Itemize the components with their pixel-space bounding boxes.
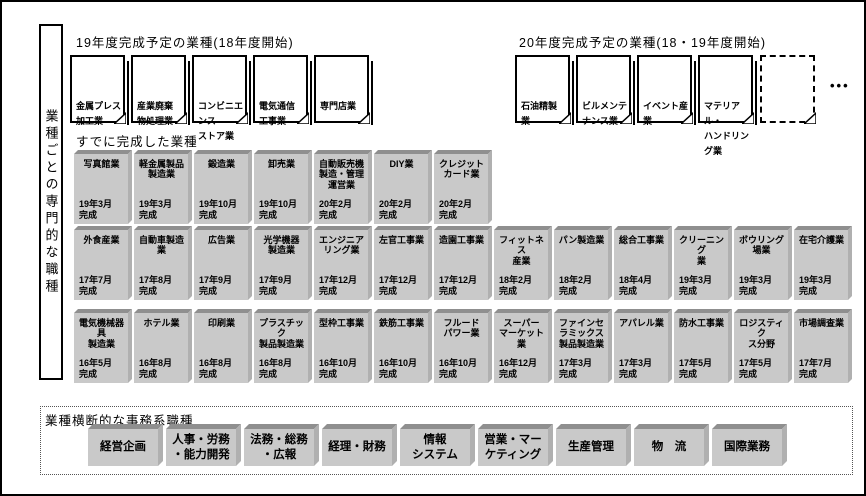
industry-name: 電気機械器具 製造業 xyxy=(77,318,126,349)
industry-name: ホテル業 xyxy=(137,318,186,328)
card-shadow-line xyxy=(249,61,251,125)
industry-name: クリーニング 業 xyxy=(677,235,726,266)
folded-corner-icon xyxy=(742,112,754,124)
office-category-box: 経営企画 xyxy=(88,429,158,466)
completed-industry-box: 光学機器 製造業 17年9月 完成 xyxy=(254,230,308,300)
completion-date: 20年2月 完成 xyxy=(377,199,426,222)
planned-20-cards-row: 石油精製 業 ビルメンテ ナンス業 イベント産業 マテリアル・ ハンドリング業 xyxy=(515,55,753,123)
planned-19-title: 19年度完成予定の業種(18年度開始) xyxy=(76,32,294,51)
industry-name: フルード パワー業 xyxy=(437,318,486,339)
completion-date: 17年12月 完成 xyxy=(377,275,426,298)
office-category-box: 法務・総務 ・広報 xyxy=(244,429,314,466)
industry-card: コンビニエンス ストア業 xyxy=(192,55,247,123)
industry-name: 鍛造業 xyxy=(197,159,246,169)
office-category-box: 営業・マー ケティング xyxy=(478,429,548,466)
industry-name: 写真館業 xyxy=(77,159,126,169)
completed-industry-box: 外食産業 17年7月 完成 xyxy=(74,230,128,300)
completion-date: 17年8月 完成 xyxy=(137,275,186,298)
completed-row-1: 写真館業 19年3月 完成 軽金属製品 製造業 19年3月 完成 鍛造業 19年… xyxy=(74,154,488,224)
industry-card-label: 産業廃棄 物処理業 xyxy=(137,101,173,126)
office-category-box: 物 流 xyxy=(634,429,704,466)
completed-industry-box: クレジット カード業 20年2月 完成 xyxy=(434,154,488,224)
planned-20-title: 20年度完成予定の業種(18・19年度開始) xyxy=(519,32,766,51)
completed-industry-box: プラスチック 製品製造業 16年8月 完成 xyxy=(254,313,308,383)
folded-corner-icon xyxy=(236,112,248,124)
industry-card: 石油精製 業 xyxy=(515,55,570,123)
industry-name: 鉄筋工事業 xyxy=(377,318,426,328)
completion-date: 16年10月 完成 xyxy=(377,358,426,381)
industry-card-label: 石油精製 業 xyxy=(521,101,557,126)
completion-date: 19年10月 完成 xyxy=(257,199,306,222)
industry-name: 軽金属製品 製造業 xyxy=(137,159,186,180)
industry-name: スーパー マーケット業 xyxy=(497,318,546,349)
completion-date: 19年3月 完成 xyxy=(677,275,726,298)
industry-name: ファインセラミックス 製品製造業 xyxy=(557,318,606,349)
completion-date: 17年12月 完成 xyxy=(437,275,486,298)
industry-name: DIY業 xyxy=(377,159,426,169)
card-shadow-line xyxy=(633,61,635,125)
completed-industry-box: クリーニング 業 19年3月 完成 xyxy=(674,230,728,300)
folded-corner-icon xyxy=(175,112,187,124)
card-shadow-line xyxy=(694,61,696,125)
completed-industry-box: 造園工事業 17年12月 完成 xyxy=(434,230,488,300)
industry-name: 防水工事業 xyxy=(677,318,726,328)
completion-date: 16年12月 完成 xyxy=(497,358,546,381)
completion-date: 16年8月 完成 xyxy=(197,358,246,381)
industry-card-label: 電気通信 工事業 xyxy=(259,101,295,126)
industry-card: マテリアル・ ハンドリング業 xyxy=(698,55,753,123)
completion-date: 17年5月 完成 xyxy=(677,358,726,381)
industry-card: 専門店業 xyxy=(314,55,369,123)
completed-industry-box: ロジスティク ス分野 17年5月 完成 xyxy=(734,313,788,383)
industry-name: 光学機器 製造業 xyxy=(257,235,306,256)
card-shadow-line xyxy=(188,61,190,125)
industry-name: 総合工事業 xyxy=(617,235,666,245)
completed-industry-box: フィットネス 産業 18年2月 完成 xyxy=(494,230,548,300)
completion-date: 20年2月 完成 xyxy=(317,199,366,222)
industry-name: エンジニア リング業 xyxy=(317,235,366,256)
completed-industry-box: 在宅介護業 19年3月 完成 xyxy=(794,230,848,300)
completion-date: 18年2月 完成 xyxy=(497,275,546,298)
completed-industry-box: 総合工事業 18年4月 完成 xyxy=(614,230,668,300)
industry-name: 造園工事業 xyxy=(437,235,486,245)
ellipsis-more-indicator: ••• xyxy=(830,78,850,93)
industry-name: フィットネス 産業 xyxy=(497,235,546,266)
industry-name: アパレル業 xyxy=(617,318,666,328)
office-category-box: 国際業務 xyxy=(712,429,782,466)
completion-date: 17年12月 完成 xyxy=(317,275,366,298)
completion-date: 16年8月 完成 xyxy=(257,358,306,381)
industry-name: 市場調査業 xyxy=(797,318,846,328)
completed-industry-box: 市場調査業 17年7月 完成 xyxy=(794,313,848,383)
future-industry-placeholder-card xyxy=(760,55,815,123)
industry-name: ロジスティク ス分野 xyxy=(737,318,786,349)
completion-date: 16年10月 完成 xyxy=(317,358,366,381)
industry-name: パン製造業 xyxy=(557,235,606,245)
industry-card: ビルメンテ ナンス業 xyxy=(576,55,631,123)
completion-date: 19年10月 完成 xyxy=(197,199,246,222)
completion-date: 17年9月 完成 xyxy=(257,275,306,298)
completed-title: すでに完成した業種 xyxy=(76,131,198,150)
industry-card: イベント産業 xyxy=(637,55,692,123)
completed-industry-box: 印刷業 16年8月 完成 xyxy=(194,313,248,383)
completed-industry-box: 自動車製造 業 17年8月 完成 xyxy=(134,230,188,300)
industry-name: 在宅介護業 xyxy=(797,235,846,245)
folded-corner-icon xyxy=(620,112,632,124)
vertical-axis-label: 業種ごとの専門的な職種 xyxy=(39,24,63,380)
folded-corner-icon xyxy=(358,112,370,124)
completed-row-2: 外食産業 17年7月 完成 自動車製造 業 17年8月 完成 広告業 17年9月… xyxy=(74,230,848,300)
office-category-box: 人事・労務 ・能力開発 xyxy=(166,429,236,466)
industry-name: プラスチック 製品製造業 xyxy=(257,318,306,349)
completed-industry-box: 自動販売機 製造・管理 運営業 20年2月 完成 xyxy=(314,154,368,224)
completed-industry-box: ボウリング 場業 19年3月 完成 xyxy=(734,230,788,300)
completed-industry-box: 卸売業 19年10月 完成 xyxy=(254,154,308,224)
card-shadow-line xyxy=(127,61,129,125)
completed-industry-box: アパレル業 17年3月 完成 xyxy=(614,313,668,383)
industry-card: 金属プレス 加工業 xyxy=(70,55,125,123)
office-category-box: 生産管理 xyxy=(556,429,626,466)
completed-industry-box: ホテル業 16年8月 完成 xyxy=(134,313,188,383)
diagram-frame: 業種ごとの専門的な職種 19年度完成予定の業種(18年度開始) 金属プレス 加工… xyxy=(0,0,866,496)
industry-name: 左官工事業 xyxy=(377,235,426,245)
industry-card: 産業廃棄 物処理業 xyxy=(131,55,186,123)
completed-industry-box: 電気機械器具 製造業 16年5月 完成 xyxy=(74,313,128,383)
industry-name: 型枠工事業 xyxy=(317,318,366,328)
completed-industry-box: スーパー マーケット業 16年12月 完成 xyxy=(494,313,548,383)
industry-name: 自動車製造 業 xyxy=(137,235,186,256)
completion-date: 17年7月 完成 xyxy=(77,275,126,298)
completed-industry-box: 左官工事業 17年12月 完成 xyxy=(374,230,428,300)
completion-date: 19年3月 完成 xyxy=(797,275,846,298)
completion-date: 19年3月 完成 xyxy=(77,199,126,222)
completed-industry-box: エンジニア リング業 17年12月 完成 xyxy=(314,230,368,300)
completion-date: 19年3月 完成 xyxy=(737,275,786,298)
industry-name: 自動販売機 製造・管理 運営業 xyxy=(317,159,366,190)
industry-card: 電気通信 工事業 xyxy=(253,55,308,123)
completion-date: 18年4月 完成 xyxy=(617,275,666,298)
industry-name: 卸売業 xyxy=(257,159,306,169)
industry-name: 印刷業 xyxy=(197,318,246,328)
folded-corner-icon xyxy=(681,112,693,124)
folded-corner-icon xyxy=(114,112,126,124)
card-shadow-line xyxy=(755,61,757,125)
completion-date: 16年5月 完成 xyxy=(77,358,126,381)
completed-industry-box: フルード パワー業 16年10月 完成 xyxy=(434,313,488,383)
industry-name: ボウリング 場業 xyxy=(737,235,786,256)
completion-date: 17年3月 完成 xyxy=(557,358,606,381)
completion-date: 16年8月 完成 xyxy=(137,358,186,381)
folded-corner-icon xyxy=(297,112,309,124)
industry-name: 外食産業 xyxy=(77,235,126,245)
completed-industry-box: 写真館業 19年3月 完成 xyxy=(74,154,128,224)
completed-industry-box: 軽金属製品 製造業 19年3月 完成 xyxy=(134,154,188,224)
industry-name: クレジット カード業 xyxy=(437,159,486,180)
completed-industry-box: DIY業 20年2月 完成 xyxy=(374,154,428,224)
completion-date: 17年3月 完成 xyxy=(617,358,666,381)
office-category-box: 経理・財務 xyxy=(322,429,392,466)
completed-industry-box: ファインセラミックス 製品製造業 17年3月 完成 xyxy=(554,313,608,383)
completion-date: 16年10月 完成 xyxy=(437,358,486,381)
completed-industry-box: 広告業 17年9月 完成 xyxy=(194,230,248,300)
completion-date: 19年3月 完成 xyxy=(137,199,186,222)
completed-industry-box: パン製造業 18年2月 完成 xyxy=(554,230,608,300)
completed-industry-box: 鉄筋工事業 16年10月 完成 xyxy=(374,313,428,383)
office-category-box: 情報 システム xyxy=(400,429,470,466)
completion-date: 20年2月 完成 xyxy=(437,199,486,222)
completion-date: 18年2月 完成 xyxy=(557,275,606,298)
card-shadow-line xyxy=(572,61,574,125)
folded-corner-icon xyxy=(559,112,571,124)
industry-card-label: マテリアル・ ハンドリング業 xyxy=(704,101,749,157)
completed-industry-box: 鍛造業 19年10月 完成 xyxy=(194,154,248,224)
completion-date: 17年9月 完成 xyxy=(197,275,246,298)
completion-date: 17年5月 完成 xyxy=(737,358,786,381)
completion-date: 17年7月 完成 xyxy=(797,358,846,381)
folded-corner-icon xyxy=(804,112,816,124)
completed-row-3: 電気機械器具 製造業 16年5月 完成 ホテル業 16年8月 完成 印刷業 16… xyxy=(74,313,848,383)
card-shadow-line xyxy=(371,61,373,125)
card-shadow-line xyxy=(310,61,312,125)
completed-industry-box: 型枠工事業 16年10月 完成 xyxy=(314,313,368,383)
planned-19-cards-row: 金属プレス 加工業 産業廃棄 物処理業 コンビニエンス ストア業 電気通信 工事… xyxy=(70,55,369,123)
industry-card-label: 専門店業 xyxy=(320,101,356,111)
office-boxes-row: 経営企画 人事・労務 ・能力開発 法務・総務 ・広報 経理・財務 情報 システム… xyxy=(88,429,782,466)
office-section: 業種横断的な事務系職種 経営企画 人事・労務 ・能力開発 法務・総務 ・広報 経… xyxy=(40,406,853,475)
industry-name: 広告業 xyxy=(197,235,246,245)
completed-industry-box: 防水工事業 17年5月 完成 xyxy=(674,313,728,383)
